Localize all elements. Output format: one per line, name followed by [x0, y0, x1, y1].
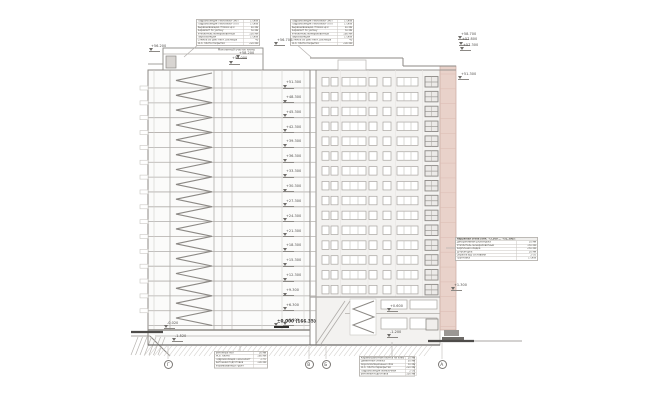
elevation-marker: -1.200: [387, 332, 417, 339]
level-flag-icon: [283, 233, 287, 236]
elevation-marker: +33.300: [283, 172, 313, 179]
floor-spec-table-right: Керамогранитная плитка на клею20 ммЦемен…: [359, 356, 415, 377]
level-flag-icon: [283, 189, 287, 192]
level-value: +39.300: [286, 139, 301, 143]
elevation-marker: ±0.000 (166.35): [274, 321, 304, 328]
level-value: +58.000: [232, 56, 247, 60]
level-value: +1.300: [454, 283, 467, 287]
level-value: +0.600: [390, 304, 403, 308]
spec-cell-value: 1 слой: [516, 257, 537, 260]
level-line: [274, 326, 289, 328]
elevation-marker: +27.300: [283, 201, 313, 208]
elevation-marker: +30.300: [283, 186, 313, 193]
wall-spec-table: Наружная стена (отм. +3.300 ... +51.300)…: [455, 237, 538, 261]
axis-bubble: Б: [322, 360, 331, 369]
level-flag-icon: [283, 174, 287, 177]
elevation-marker: +36.300: [283, 157, 313, 164]
section-elevation-drawing: Гидроизоляция Техноэласт ЭКП1 слойГидрои…: [0, 0, 660, 400]
level-value: +57.300: [463, 43, 478, 47]
level-flag-icon: [387, 334, 391, 337]
elevation-marker: +21.300: [283, 231, 313, 238]
spec-cell-value: 220 мм: [243, 42, 259, 45]
elevation-marker: +58.000: [229, 59, 259, 66]
level-value: +45.300: [286, 110, 301, 114]
floor-spec-table-left: Бетонный пол30 ммЖ.б. плита160 ммГидроиз…: [214, 351, 268, 369]
axis-bubble: В: [305, 360, 314, 369]
level-value: +21.300: [286, 229, 301, 233]
level-value: +30.300: [286, 184, 301, 188]
elevation-marker: +48.300: [283, 97, 313, 104]
axis-letter: Г: [167, 362, 170, 366]
spec-cell-label: Утрамбованный грунт: [215, 365, 254, 368]
axis-bubble: А: [438, 360, 447, 369]
level-value: +36.300: [286, 154, 301, 158]
level-flag-icon: [172, 338, 176, 341]
roof-note: Монолитный участок плиты: [218, 49, 255, 52]
level-flag-icon: [283, 114, 287, 117]
level-value: +56.200: [151, 44, 166, 48]
level-value: +12.300: [286, 273, 301, 277]
level-value: +15.300: [286, 258, 301, 262]
level-value: +24.300: [286, 214, 301, 218]
elevation-marker: +0.600: [387, 306, 417, 313]
level-flag-icon: [283, 159, 287, 162]
level-value: +6.300: [286, 303, 299, 307]
level-value: +27.300: [286, 199, 301, 203]
level-value: +57.800: [462, 37, 477, 41]
elevation-marker: +45.300: [283, 112, 313, 119]
level-flag-icon: [283, 278, 287, 281]
elevation-marker: +6.300: [283, 305, 313, 312]
level-flag-icon: [458, 76, 462, 79]
level-flag-icon: [283, 129, 287, 132]
level-value: ±0.000 (166.35): [277, 319, 316, 324]
elevation-marker: +51.300: [458, 74, 488, 81]
elevation-marker: +12.300: [283, 276, 313, 283]
axis-letter: В: [307, 362, 310, 366]
level-flag-icon: [149, 48, 153, 51]
level-flag-icon: [283, 100, 287, 103]
elevation-marker: +9.300: [283, 290, 313, 297]
spec-cell-label: Бетонная подготовка: [360, 373, 405, 376]
level-flag-icon: [283, 144, 287, 147]
axis-bubble: Г: [164, 360, 173, 369]
level-value: +48.300: [286, 95, 301, 99]
level-value: -1.200: [390, 330, 401, 334]
spec-cell-value: 200 мм: [337, 42, 353, 45]
elevation-marker: +1.300: [451, 285, 481, 292]
spec-cell-value: 100 мм: [405, 373, 416, 376]
level-flag-icon: [387, 308, 391, 311]
elevation-marker: +57.300: [460, 45, 490, 52]
level-value: +51.300: [286, 80, 301, 84]
level-value: +42.300: [286, 125, 301, 129]
level-value: +56.700: [277, 38, 292, 42]
level-value: +9.300: [286, 288, 299, 292]
axis-letter: Б: [324, 362, 327, 366]
elevation-marker: +18.300: [283, 246, 313, 253]
level-flag-icon: [229, 61, 233, 64]
spec-cell-label: Ж.б. плита покрытия: [197, 42, 243, 45]
elevation-marker: -0.020: [164, 323, 194, 330]
spec-cell-value: [254, 365, 268, 368]
level-flag-icon: [460, 47, 464, 50]
level-flag-icon: [274, 42, 278, 45]
level-flag-icon: [283, 263, 287, 266]
level-flag-icon: [283, 293, 287, 296]
elevation-marker: +56.700: [274, 40, 304, 47]
axis-letter: А: [440, 362, 443, 366]
spec-cell-label: Грунтовка: [456, 257, 516, 260]
level-flag-icon: [283, 248, 287, 251]
level-value: +33.300: [286, 169, 301, 173]
elevation-marker: +56.200: [149, 46, 179, 53]
elevation-marker: +15.300: [283, 261, 313, 268]
level-value: +51.300: [461, 72, 476, 76]
level-value: -1.520: [175, 334, 186, 338]
elevation-marker: -1.520: [172, 336, 202, 343]
level-flag-icon: [283, 203, 287, 206]
level-flag-icon: [164, 325, 168, 328]
elevation-marker: +24.300: [283, 216, 313, 223]
level-flag-icon: [283, 85, 287, 88]
roof-spec-table-left: Гидроизоляция Техноэласт ЭКП1 слойГидрои…: [196, 19, 260, 46]
level-flag-icon: [451, 287, 455, 290]
elevation-marker: +42.300: [283, 127, 313, 134]
level-flag-icon: [283, 307, 287, 310]
level-value: +58.700: [461, 32, 476, 36]
linework-layer: [0, 0, 660, 400]
level-value: -0.020: [167, 321, 178, 325]
elevation-marker: +51.300: [283, 83, 313, 90]
level-flag-icon: [283, 218, 287, 221]
elevation-marker: +39.300: [283, 142, 313, 149]
level-value: +18.300: [286, 243, 301, 247]
